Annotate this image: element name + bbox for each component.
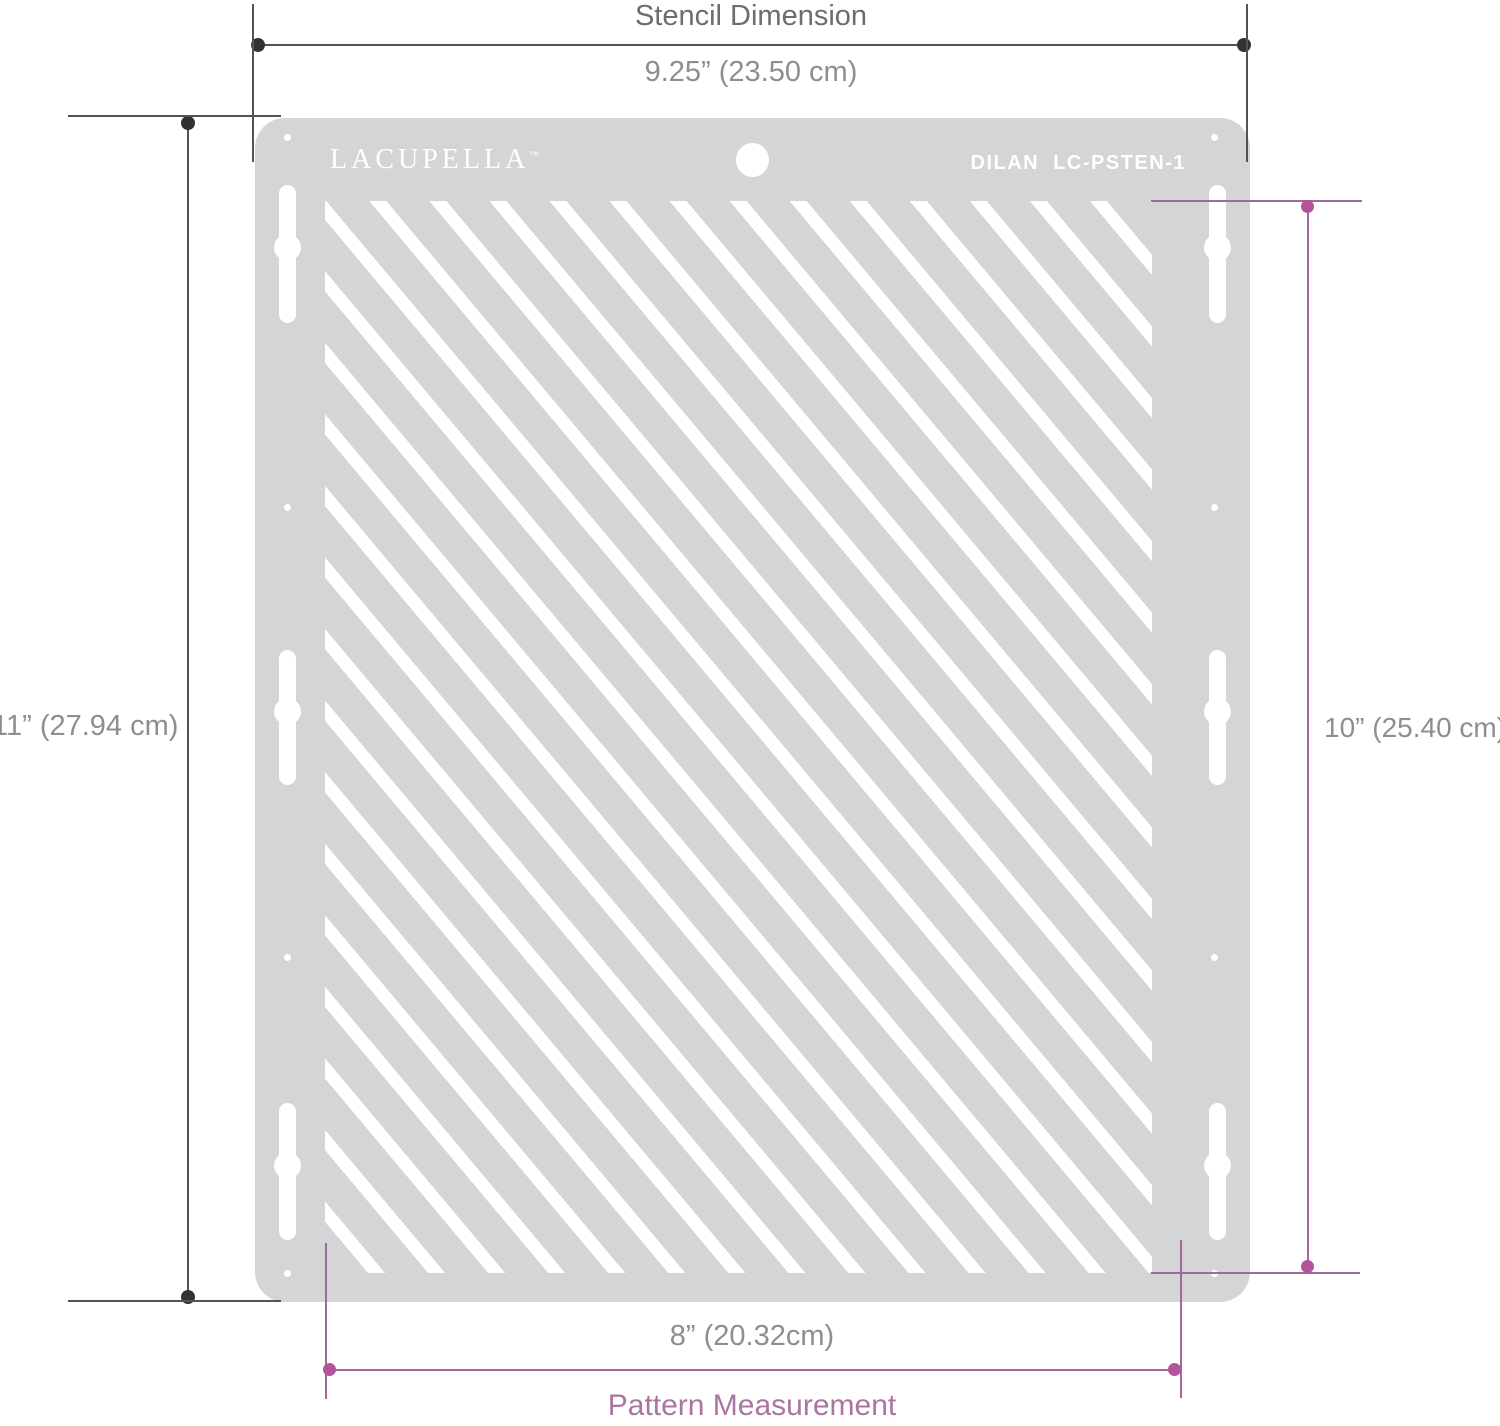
slot-hole-left-top: [274, 234, 301, 261]
stencil-dimension-title: Stencil Dimension: [451, 0, 1051, 33]
registration-hole: [1211, 504, 1218, 511]
right-dimension-endpoint-bottom: [1301, 1260, 1314, 1273]
slot-hole-left-middle: [274, 698, 301, 725]
top-dimension-line: [257, 44, 1245, 46]
bottom-dimension-endpoint-left: [323, 1363, 336, 1376]
bottom-extension-line-right: [1180, 1240, 1182, 1398]
brand-text: LACUPELLA: [330, 144, 529, 175]
top-dimension-endpoint-right: [1237, 38, 1251, 52]
slot-hole-right-top: [1204, 234, 1231, 261]
diagonal-stripe-pattern: [325, 201, 1152, 1273]
brand-logo: LACUPELLA™: [330, 144, 539, 176]
left-dimension-line: [187, 122, 189, 1298]
registration-hole: [284, 954, 291, 961]
model-number: DILAN LC-PSTEN-1: [971, 152, 1187, 175]
pattern-measurement-label: Pattern Measurement: [452, 1389, 1052, 1423]
hanging-hole: [736, 143, 769, 177]
top-extension-line-left: [252, 4, 254, 162]
registration-hole: [1211, 954, 1218, 961]
left-dimension-endpoint-top: [181, 116, 195, 130]
top-extension-line-right: [1246, 4, 1248, 162]
right-dimension-endpoint-top: [1301, 200, 1314, 213]
slot-hole-left-bottom: [274, 1152, 301, 1179]
registration-hole: [284, 1270, 291, 1277]
product-dimension-diagram: LACUPELLA™ DILAN LC-PSTEN-1 Stencil Dime…: [0, 0, 1500, 1426]
left-extension-line-top: [68, 115, 281, 117]
right-dimension-line: [1307, 206, 1309, 1268]
trademark-symbol: ™: [529, 150, 539, 161]
slot-hole-right-middle: [1204, 698, 1231, 725]
stencil-height-value: 11” (27.94 cm): [0, 710, 178, 743]
pattern-width-value: 8” (20.32cm): [452, 1320, 1052, 1353]
pattern-height-value: 10” (25.40 cm): [1324, 712, 1500, 744]
stencil-width-value: 9.25” (23.50 cm): [451, 56, 1051, 89]
slot-hole-right-bottom: [1204, 1152, 1231, 1179]
registration-hole: [284, 504, 291, 511]
right-reference-line-top: [1151, 200, 1362, 202]
right-reference-line-bottom: [1151, 1272, 1360, 1274]
left-extension-line-bottom: [68, 1300, 281, 1302]
registration-hole: [284, 134, 291, 141]
bottom-dimension-line: [328, 1369, 1177, 1371]
registration-hole: [1211, 134, 1218, 141]
bottom-dimension-endpoint-right: [1168, 1363, 1181, 1376]
